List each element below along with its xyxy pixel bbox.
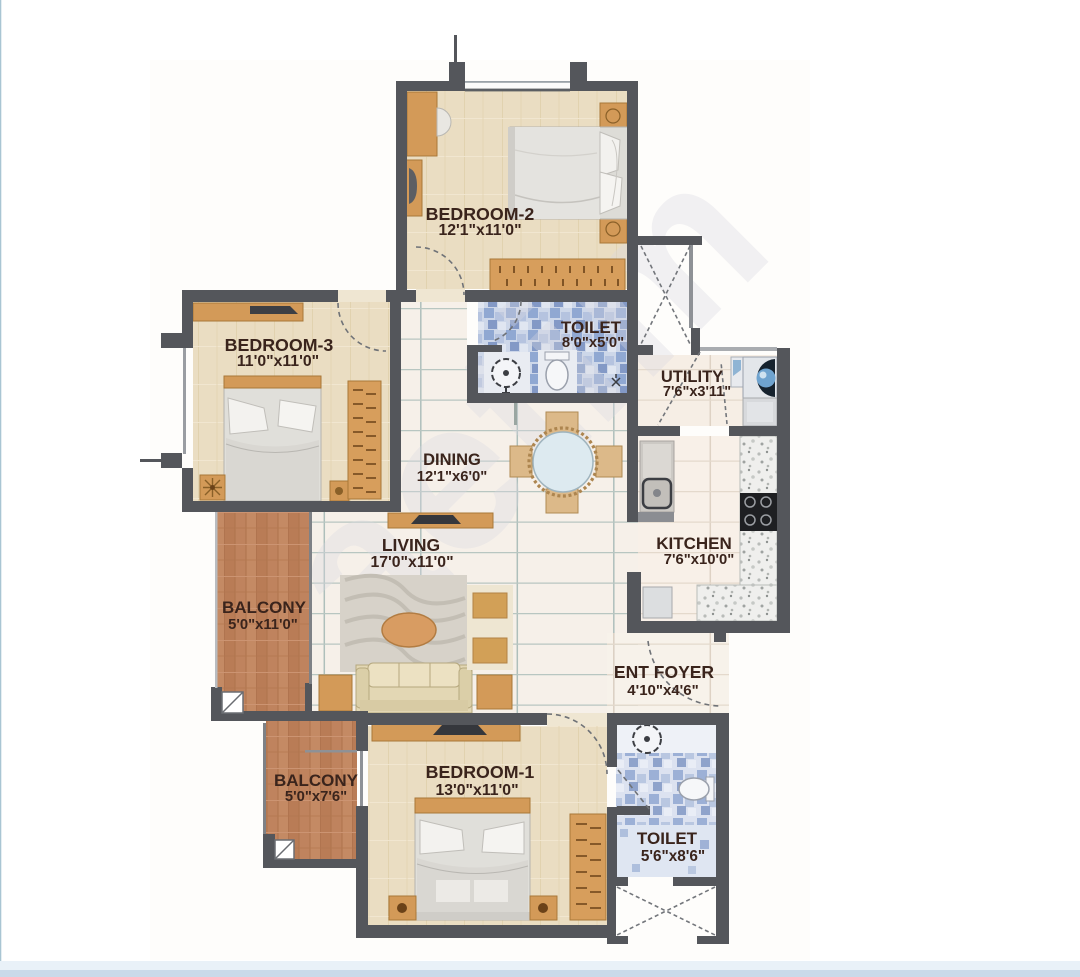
svg-text:7'6"x3'11": 7'6"x3'11": [663, 384, 731, 400]
svg-text:DINING: DINING: [423, 451, 481, 469]
svg-text:13'0"x11'0": 13'0"x11'0": [435, 782, 518, 799]
svg-text:17'0"x11'0": 17'0"x11'0": [370, 554, 453, 571]
svg-text:5'0"x7'6": 5'0"x7'6": [285, 789, 347, 805]
svg-text:12'1"x6'0": 12'1"x6'0": [417, 469, 487, 485]
svg-text:LIVING: LIVING: [382, 535, 440, 555]
svg-text:11'0"x11'0": 11'0"x11'0": [237, 353, 319, 370]
svg-text:ENT FOYER: ENT FOYER: [614, 662, 715, 682]
svg-text:BEDROOM-2: BEDROOM-2: [426, 204, 535, 224]
svg-text:7'6"x10'0": 7'6"x10'0": [664, 552, 734, 568]
svg-text:TOILET: TOILET: [637, 829, 698, 848]
svg-text:BEDROOM-1: BEDROOM-1: [426, 762, 535, 782]
svg-text:BALCONY: BALCONY: [222, 598, 307, 617]
svg-text:BALCONY: BALCONY: [274, 771, 359, 790]
svg-text:KITCHEN: KITCHEN: [656, 534, 732, 553]
svg-text:5'0"x11'0": 5'0"x11'0": [228, 617, 298, 633]
svg-text:4'10"x4'6": 4'10"x4'6": [627, 682, 698, 699]
svg-text:8'0"x5'0": 8'0"x5'0": [562, 335, 624, 351]
svg-text:BEDROOM-3: BEDROOM-3: [225, 335, 334, 355]
svg-text:12'1"x11'0": 12'1"x11'0": [438, 222, 521, 239]
svg-text:5'6"x8'6": 5'6"x8'6": [641, 848, 705, 865]
